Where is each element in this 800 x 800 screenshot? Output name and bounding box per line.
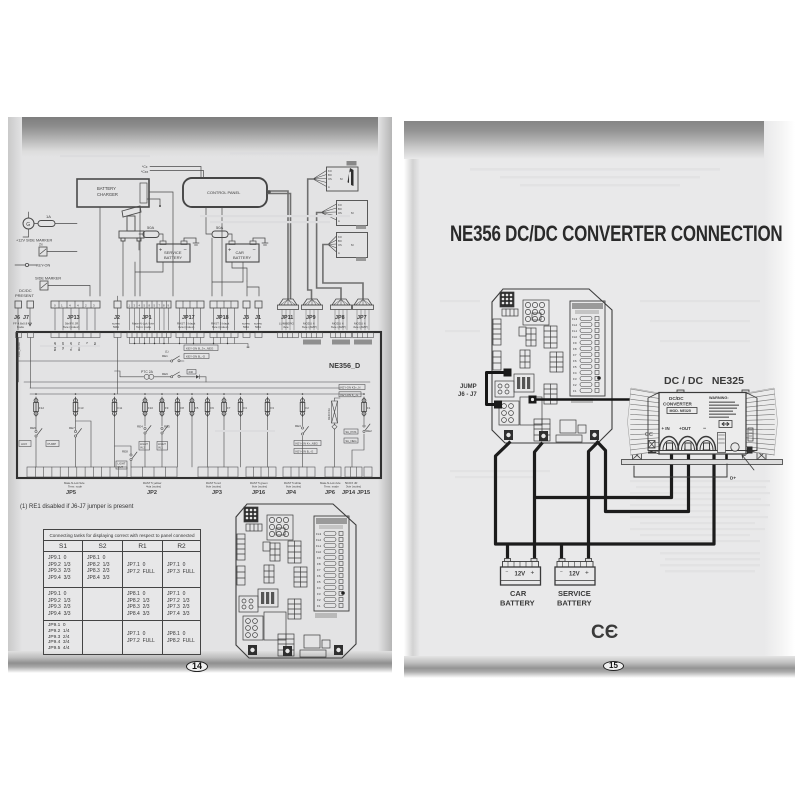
svg-text:8: 8 — [163, 304, 165, 308]
svg-text:KO: KO — [328, 169, 332, 173]
svg-text:RED 0.5A: RED 0.5A — [327, 408, 331, 420]
svg-text:JP11: JP11 — [281, 315, 293, 321]
svg-text:Kode: Kode — [17, 325, 24, 329]
svg-text:6vie (molex): 6vie (molex) — [286, 485, 301, 489]
svg-text:JP16: JP16 — [252, 490, 265, 496]
svg-text:12V: 12V — [515, 572, 526, 578]
svg-text:SERVICE: SERVICE — [558, 589, 591, 598]
svg-text:OS: OS — [338, 243, 342, 247]
svg-text:NE356_D: NE356_D — [329, 361, 360, 370]
svg-text:RE1: RE1 — [162, 354, 168, 358]
svg-text:7: 7 — [159, 304, 161, 308]
svg-text:LIGHT: LIGHT — [118, 462, 126, 466]
svg-text:1: 1 — [129, 304, 131, 308]
svg-text:BO: BO — [328, 173, 332, 177]
svg-text:−: − — [703, 426, 706, 432]
svg-text:5: 5 — [154, 304, 156, 308]
svg-text:CЄ: CЄ — [591, 622, 619, 643]
svg-text:3vie (molex): 3vie (molex) — [346, 485, 361, 489]
svg-text:RE3: RE3 — [295, 424, 301, 428]
svg-text:BATTERY: BATTERY — [164, 255, 182, 260]
svg-text:8: 8 — [149, 304, 151, 308]
svg-text:J1: J1 — [255, 315, 261, 321]
svg-text:D+: D+ — [730, 476, 736, 481]
svg-text:12V: 12V — [569, 572, 580, 578]
svg-text:LIGHT: LIGHT — [140, 442, 148, 446]
svg-text:JP15: JP15 — [357, 490, 370, 496]
svg-text:OS: OS — [338, 211, 342, 215]
svg-text:M: M — [351, 243, 354, 247]
svg-text:WARNING:: WARNING: — [709, 396, 729, 400]
svg-text:CЄ: CЄ — [645, 432, 653, 438]
svg-text:F1: F1 — [367, 406, 371, 410]
svg-text:24h: 24h — [189, 370, 194, 374]
svg-text:BATTERY: BATTERY — [97, 186, 116, 191]
svg-text:0: 0 — [54, 304, 56, 308]
svg-text:*Cx: *Cx — [142, 165, 148, 169]
svg-text:+: + — [228, 248, 231, 254]
svg-text:5MA: 5MA — [113, 325, 119, 329]
svg-text:KO: KO — [338, 235, 342, 239]
svg-text:F11: F11 — [118, 406, 123, 410]
svg-text:S: S — [85, 342, 89, 344]
svg-text:+: + — [159, 248, 162, 254]
svg-text:6vie (AMP): 6vie (AMP) — [331, 325, 346, 329]
svg-text:KEY-ON K_-G: KEY-ON K_-G — [341, 393, 359, 397]
svg-text:CHARGER: CHARGER — [97, 192, 118, 197]
svg-text:5: 5 — [144, 304, 146, 308]
svg-text:10: 10 — [748, 449, 752, 453]
svg-text:*Cxx: *Cxx — [141, 170, 148, 174]
svg-text:KO: KO — [338, 203, 342, 207]
svg-text:BATTERY: BATTERY — [233, 255, 251, 260]
svg-text:1: 1 — [61, 304, 63, 308]
svg-text:+: + — [585, 570, 589, 577]
svg-text:4: 4 — [69, 304, 71, 308]
svg-text:CONTROL PANEL: CONTROL PANEL — [207, 190, 241, 195]
svg-text:PTC 2A: PTC 2A — [141, 370, 154, 374]
svg-text:F10: F10 — [148, 406, 153, 410]
svg-text:OS: OS — [328, 177, 332, 181]
svg-text:6vie (molex): 6vie (molex) — [252, 485, 267, 489]
svg-text:BO: BO — [338, 239, 342, 243]
svg-text:RE6: RE6 — [30, 426, 36, 430]
svg-text:6vie (molex): 6vie (molex) — [212, 325, 228, 329]
svg-text:F9: F9 — [165, 406, 169, 410]
svg-text:JP9: JP9 — [306, 315, 316, 321]
svg-text:JP7: JP7 — [357, 315, 367, 321]
svg-text:+OUT: +OUT — [679, 426, 691, 431]
svg-text:−: − — [506, 570, 509, 576]
svg-text:JP6: JP6 — [325, 490, 335, 496]
svg-text:F12: F12 — [39, 406, 44, 410]
svg-text:M: M — [351, 211, 354, 215]
svg-text:−: − — [560, 570, 563, 576]
svg-text:6vie (AMP): 6vie (AMP) — [302, 325, 317, 329]
svg-text:9A_POS: 9A_POS — [346, 430, 357, 434]
svg-text:F5: F5 — [195, 406, 199, 410]
svg-text:JP14: JP14 — [342, 490, 356, 496]
svg-text:G: G — [26, 222, 30, 228]
svg-text:DC / DC NE325: DC / DC NE325 — [664, 375, 744, 387]
svg-text:4via (molex): 4via (molex) — [146, 485, 161, 489]
svg-text:IN 2: IN 2 — [140, 446, 145, 450]
svg-text:JP13: JP13 — [67, 315, 80, 321]
svg-text:5MA: 5MA — [255, 325, 261, 329]
svg-text:KEY-ON K+_NEG: KEY-ON K+_NEG — [296, 442, 318, 446]
svg-text:(1): (1) — [165, 350, 169, 354]
svg-text:A: A — [328, 185, 330, 189]
svg-text:BATTERY: BATTERY — [557, 599, 592, 608]
svg-text:Term: made: Term: made — [324, 485, 339, 489]
svg-text:3: 3 — [93, 304, 95, 308]
svg-text:A: A — [338, 251, 340, 255]
svg-text:50A: 50A — [147, 225, 154, 230]
svg-text:IN 1: IN 1 — [158, 446, 163, 450]
svg-text:SIDE MARKER: SIDE MARKER — [35, 277, 61, 281]
svg-text:RE7: RE7 — [69, 426, 75, 430]
svg-text:F8: F8 — [181, 406, 185, 410]
svg-text:J6 - J7: J6 - J7 — [458, 392, 477, 398]
svg-text:J6 J7: J6 J7 — [14, 315, 29, 321]
svg-text:KEY-ON: KEY-ON — [36, 264, 50, 268]
svg-text:A: A — [338, 219, 340, 223]
svg-text:PRESENT: PRESENT — [15, 293, 34, 298]
svg-text:F3: F3 — [271, 406, 275, 410]
svg-text:JP2: JP2 — [147, 490, 157, 496]
svg-text:2x: 2x — [39, 243, 43, 247]
svg-text:JP5: JP5 — [66, 490, 76, 496]
svg-text:CONVERTER: CONVERTER — [663, 402, 693, 407]
svg-text:4via (molex): 4via (molex) — [178, 325, 194, 329]
svg-text:−: − — [184, 247, 187, 253]
svg-text:Term: node: Term: node — [136, 325, 151, 329]
svg-text:F7: F7 — [227, 406, 231, 410]
svg-text:5MA: 5MA — [243, 325, 249, 329]
svg-text:+12V SIDE MARKER: +12V SIDE MARKER — [16, 239, 52, 243]
svg-text:F6: F6 — [211, 406, 215, 410]
svg-text:DC/DC: DC/DC — [669, 396, 684, 401]
svg-text:3: 3 — [134, 304, 136, 308]
svg-text:JP3: JP3 — [212, 490, 222, 496]
svg-text:J3: J3 — [243, 315, 249, 321]
svg-text:2: 2 — [85, 304, 87, 308]
svg-text:4: 4 — [77, 304, 79, 308]
svg-text:CHA_DCDC: CHA_DCDC — [17, 342, 21, 357]
svg-text:F2: F2 — [306, 406, 310, 410]
svg-text:+: + — [531, 570, 535, 577]
svg-text:RE2: RE2 — [366, 429, 372, 433]
svg-text:RE8: RE8 — [122, 450, 128, 454]
svg-text:RE9: RE9 — [162, 372, 168, 376]
svg-text:KEY-ON B_-G: KEY-ON B_-G — [296, 450, 314, 454]
svg-text:1A: 1A — [46, 214, 51, 219]
svg-text:JP17: JP17 — [182, 315, 195, 321]
svg-text:MOD. NE325: MOD. NE325 — [670, 409, 691, 413]
svg-text:M: M — [340, 177, 343, 181]
svg-text:9A_NEG: 9A_NEG — [346, 439, 357, 443]
svg-text:KEY-ON B_-G: KEY-ON B_-G — [186, 355, 206, 359]
svg-text:RE4: RE4 — [137, 425, 143, 429]
svg-text:4vie: 4vie — [283, 325, 289, 329]
svg-text:F13: F13 — [79, 406, 84, 410]
svg-text:4vie (AMP): 4vie (AMP) — [353, 325, 368, 329]
svg-text:9: 9 — [168, 304, 170, 308]
svg-text:LIGHT: LIGHT — [158, 442, 166, 446]
svg-text:JUMP: JUMP — [460, 384, 477, 390]
svg-text:KEY-ON B_3+_NEG: KEY-ON B_3+_NEG — [186, 346, 214, 350]
svg-text:JP8: JP8 — [335, 315, 345, 321]
svg-text:AUX: AUX — [21, 442, 27, 446]
svg-text:BATTERY: BATTERY — [500, 599, 535, 608]
svg-text:−: − — [253, 247, 256, 253]
svg-text:J2: J2 — [114, 315, 120, 321]
svg-text:6vie (molex): 6vie (molex) — [63, 325, 79, 329]
svg-text:KEY-ON K3+_N: KEY-ON K3+_N — [341, 386, 361, 390]
svg-text:Term: node: Term: node — [68, 485, 82, 489]
svg-text:PUMP: PUMP — [48, 442, 57, 446]
svg-text:6vie (molex): 6vie (molex) — [206, 485, 221, 489]
svg-text:JP4: JP4 — [286, 490, 297, 496]
svg-text:F4: F4 — [244, 406, 248, 410]
svg-text:JP1: JP1 — [142, 315, 152, 321]
svg-text:4: 4 — [139, 304, 141, 308]
svg-text:JP18: JP18 — [216, 315, 229, 321]
svg-text:CAR: CAR — [510, 589, 527, 598]
svg-text:+ IN: + IN — [662, 426, 670, 431]
svg-text:BO: BO — [338, 207, 342, 211]
